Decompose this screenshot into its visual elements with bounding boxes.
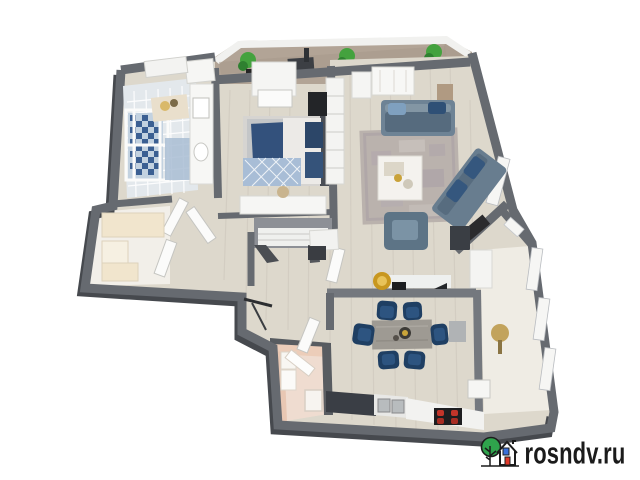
svg-text:rosndv.ru: rosndv.ru bbox=[525, 436, 626, 470]
